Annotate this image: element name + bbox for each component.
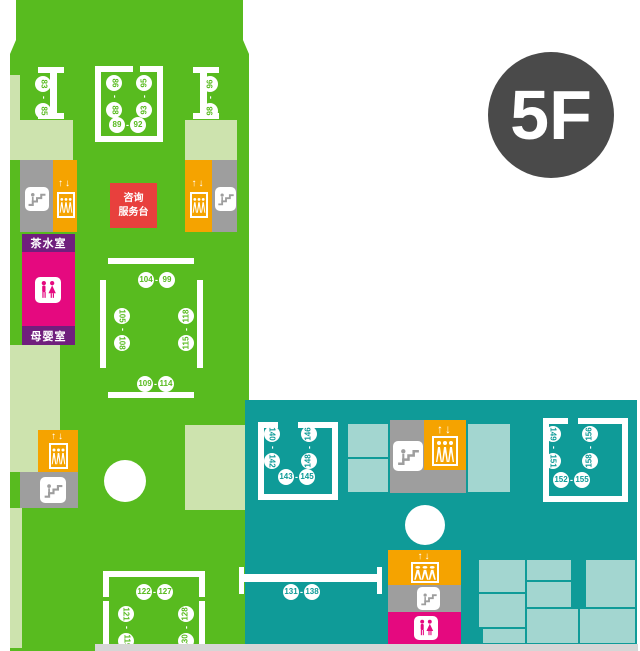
gate-number: 93 [136, 102, 152, 118]
gate-number: 151 [545, 453, 561, 469]
shop-block [185, 120, 237, 160]
gate-number: 143 [278, 469, 294, 485]
gate-number: 145 [299, 469, 315, 485]
gates-115-118: 118 - 115 [178, 308, 194, 351]
elevator-arrows: ↑↓ [424, 423, 466, 435]
gate-number: 156 [582, 426, 598, 442]
wall-segment [108, 258, 194, 264]
gate-number: 128 [178, 606, 194, 622]
elevator-icon [190, 192, 208, 218]
gate-number: 138 [304, 584, 320, 600]
gates-131-138: 131 - 138 [283, 584, 320, 600]
shop-block [479, 594, 525, 627]
gates-128-130: 128 - 130 [178, 606, 194, 649]
gates-146-148: 146 - 148 [301, 426, 317, 469]
gates-156-158: 156 - 158 [582, 426, 598, 469]
gates-119-121: 121 - 119 [118, 606, 134, 649]
gate-number: 86 [106, 75, 122, 91]
elevator-arrows: ↑↓ [38, 432, 78, 442]
range-dash: - [39, 96, 48, 99]
shop-block [348, 424, 388, 457]
gates-104-99: 104 - 99 [138, 272, 175, 288]
range-dash: - [586, 446, 595, 449]
elevator-arrows: ↑↓ [185, 179, 212, 189]
gates-109-114: 109 - 114 [137, 376, 174, 392]
escalator-icon [215, 187, 236, 211]
range-dash: - [549, 446, 558, 449]
gates-149-151: 149 - 151 [545, 426, 561, 469]
elevator-icon [411, 562, 439, 583]
gate-number: 108 [114, 335, 130, 351]
wall-segment [50, 67, 57, 119]
gates-105-108: 105 - 108 [114, 308, 130, 351]
gates-140-142: 140 - 142 [264, 426, 280, 469]
wall-segment [622, 418, 628, 502]
gate-number: 148 [301, 453, 317, 469]
nursing-room: 母婴室 [22, 326, 75, 345]
shop-block [586, 560, 635, 607]
range-dash: - [122, 626, 131, 629]
bottom-edge-strip [95, 644, 638, 651]
counter-bar [239, 574, 382, 582]
nursing-room-label: 母婴室 [31, 328, 67, 344]
shop-block [479, 560, 525, 592]
counter-bar-cap [239, 567, 244, 594]
elevator-arrows: ↑↓ [53, 179, 77, 189]
gate-number: 92 [130, 117, 146, 133]
wall-segment [578, 418, 628, 424]
counter-bar-cap [377, 567, 382, 594]
range-dash: - [305, 446, 314, 449]
wall-segment [543, 496, 628, 502]
range-dash: - [206, 96, 215, 99]
gate-number: 104 [138, 272, 154, 288]
gate-number: 98 [202, 103, 218, 119]
wall-segment [197, 280, 203, 368]
escalator-icon [393, 441, 423, 471]
restroom-icon [35, 277, 61, 303]
shop-block [10, 430, 38, 472]
elevator-icon [432, 436, 458, 466]
gates-152-155: 152 - 155 [553, 472, 590, 488]
info-desk: 咨询 服务台 [110, 183, 157, 228]
gate-number: 127 [157, 584, 173, 600]
floor-badge-label: 5F [510, 75, 592, 155]
gate-number: 109 [137, 376, 153, 392]
wall-segment [258, 494, 338, 500]
escalator-icon [40, 477, 66, 503]
wall-segment [103, 571, 109, 597]
gate-number: 140 [264, 426, 280, 442]
gate-number: 95 [136, 75, 152, 91]
gate-number: 142 [264, 453, 280, 469]
range-dash: - [570, 476, 573, 485]
shop-block [10, 345, 60, 430]
shop-block [527, 582, 571, 607]
range-dash: - [110, 95, 119, 98]
wall-segment [199, 601, 205, 648]
gates-89-92: 89 - 92 [109, 117, 146, 133]
shop-block [185, 425, 245, 510]
shop-block [483, 629, 525, 643]
wall-segment [95, 136, 163, 142]
escalator-icon [25, 187, 49, 211]
range-dash: - [118, 328, 127, 331]
range-dash: - [154, 380, 157, 389]
shop-block [10, 75, 20, 160]
range-dash: - [153, 588, 156, 597]
wall-segment [103, 601, 109, 648]
gate-number: 105 [114, 308, 130, 324]
gate-number: 96 [202, 76, 218, 92]
shop-block [348, 459, 388, 492]
elevator-icon [49, 443, 68, 469]
range-dash: - [295, 473, 298, 482]
wall-segment [108, 392, 194, 398]
shop-block [580, 609, 635, 643]
info-desk-label-line1: 咨询 [124, 192, 144, 206]
gate-number: 118 [178, 308, 194, 324]
gates-122-127: 122 - 127 [136, 584, 173, 600]
range-dash: - [300, 588, 303, 597]
shop-block [468, 424, 510, 492]
shop-block [527, 609, 578, 643]
escalator-icon [417, 587, 440, 610]
gate-number: 149 [545, 426, 561, 442]
atrium-circle [104, 460, 146, 502]
wall-segment [95, 66, 101, 142]
atrium-circle [405, 505, 445, 545]
elevator-arrows: ↑↓ [388, 552, 461, 562]
info-desk-label-line2: 服务台 [119, 206, 149, 220]
range-dash: - [268, 446, 277, 449]
tea-room-label: 茶水室 [31, 235, 67, 251]
gate-number: 131 [283, 584, 299, 600]
gate-number: 146 [301, 426, 317, 442]
range-dash: - [155, 276, 158, 285]
gate-number: 85 [35, 103, 51, 119]
gate-number: 121 [118, 606, 134, 622]
gates-93-95: 95 - 93 [136, 75, 152, 118]
wall-segment [103, 571, 205, 577]
gate-number: 114 [158, 376, 174, 392]
gate-number: 122 [136, 584, 152, 600]
wall-segment [199, 571, 205, 597]
gate-number: 115 [178, 335, 194, 351]
range-dash: - [140, 95, 149, 98]
elevator-icon [57, 192, 75, 218]
shop-block [10, 508, 22, 648]
gate-number: 89 [109, 117, 125, 133]
restroom-icon [414, 616, 438, 640]
wall-segment [157, 66, 163, 142]
wall-segment [100, 280, 106, 368]
gate-number: 158 [582, 453, 598, 469]
floor-badge: 5F [488, 52, 614, 178]
range-dash: - [182, 328, 191, 331]
gate-number: 83 [35, 76, 51, 92]
shop-block [527, 560, 571, 580]
range-dash: - [182, 626, 191, 629]
gate-number: 152 [553, 472, 569, 488]
wall-segment [332, 422, 338, 500]
gate-number: 155 [574, 472, 590, 488]
gates-143-145: 143 - 145 [278, 469, 315, 485]
gates-96-98: 96 - 98 [202, 76, 218, 119]
gates-83-85: 83 - 85 [35, 76, 51, 119]
gates-86-88: 86 - 88 [106, 75, 122, 118]
gate-number: 88 [106, 102, 122, 118]
floor-map-5f: ↑↓ ↑↓ 咨询 服务台 茶水室 [0, 0, 640, 651]
range-dash: - [126, 121, 129, 130]
tea-room: 茶水室 [22, 234, 75, 252]
shop-block [20, 120, 73, 160]
gate-number: 99 [159, 272, 175, 288]
